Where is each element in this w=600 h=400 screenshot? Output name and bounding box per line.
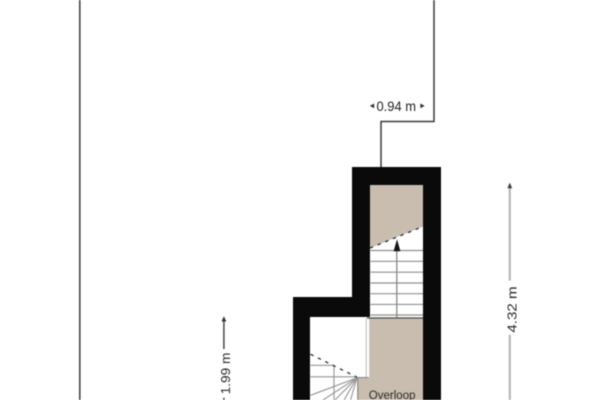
svg-text:4.32 m: 4.32 m [505,286,520,332]
svg-text:0.94 m: 0.94 m [377,99,417,114]
svg-text:1.99 m: 1.99 m [218,353,233,395]
svg-text:Overloop: Overloop [369,388,416,400]
